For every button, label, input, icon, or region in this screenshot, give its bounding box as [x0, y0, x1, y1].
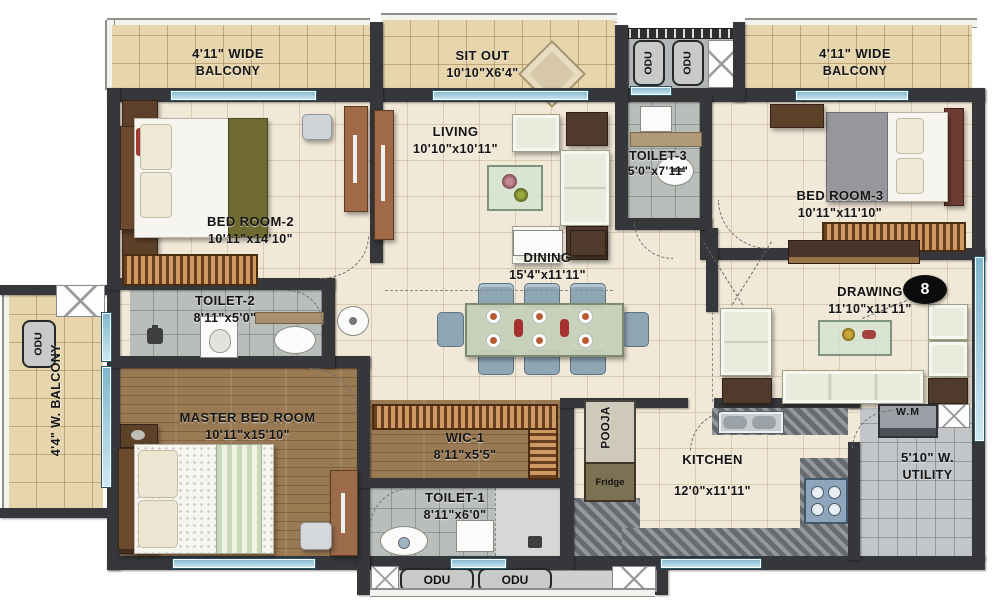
room-dims: BALCONY: [128, 63, 328, 79]
plant-decor-icon: [514, 188, 528, 202]
wc-icon: [456, 520, 494, 552]
washing-machine-label: W.M: [896, 406, 920, 418]
room-name: SIT OUT: [400, 48, 565, 65]
wall: [706, 228, 718, 312]
dining-chair-icon: [622, 312, 649, 347]
room-name: POOJA: [600, 398, 615, 456]
wall: [357, 356, 370, 570]
vent-grill-icon: [628, 28, 735, 39]
stove-icon: [804, 478, 848, 524]
room-name: TOILET-3: [608, 148, 708, 164]
odu-label: ODU: [643, 51, 655, 74]
kitchen-label: KITCHEN12'0"x11'11": [630, 452, 795, 499]
dresser-icon: [330, 470, 358, 556]
floor-plan: ODU ODU ODU ODU ODU: [0, 0, 1000, 600]
flower-decor-icon: [502, 174, 517, 189]
room-dims: 10'10"X6'4": [400, 65, 565, 81]
blanket-icon: [216, 444, 262, 554]
pillow-icon: [140, 172, 172, 218]
bedroom3-label: BED ROOM-310'11"x11'10": [745, 188, 935, 221]
wall: [560, 400, 574, 570]
balcony-top-right-label: 4'11" WIDEBALCONY: [755, 46, 955, 79]
cistern-icon: [640, 106, 672, 132]
table-runner-icon: [560, 319, 569, 337]
nightstand-icon: [770, 104, 824, 128]
armchair-icon: [928, 341, 968, 377]
table-runner-icon: [514, 319, 523, 337]
window: [660, 558, 762, 569]
sofa-icon: [560, 150, 610, 226]
vanity-counter-icon: [630, 132, 702, 147]
side-table-icon: [722, 378, 772, 404]
odu-label: ODU: [502, 573, 529, 587]
room-dims: 5'0"x7'11": [608, 164, 708, 180]
room-dims: BALCONY: [755, 63, 955, 79]
room-name: WIC-1: [390, 430, 540, 447]
room-name: LIVING: [388, 124, 523, 141]
room-name: 5'10" W.: [870, 450, 985, 467]
tv-unit-handle: [381, 145, 385, 201]
wardrobe-icon: [122, 254, 258, 286]
room-name: TOILET-2: [150, 293, 300, 310]
window: [795, 90, 909, 101]
room-name: 4'11" WIDE: [755, 46, 955, 63]
odu-unit: ODU: [672, 40, 704, 86]
chair-icon: [302, 114, 332, 140]
room-name: BED ROOM-3: [745, 188, 935, 205]
room-name: DRAWING: [780, 284, 960, 301]
dining-label: DINING15'4"x11'11": [470, 250, 625, 283]
odu-unit: ODU: [633, 40, 665, 86]
room-name: TOILET-1: [380, 490, 530, 507]
wc-seat: [209, 329, 231, 353]
balcony-top-left-label: 4'11" WIDEBALCONY: [128, 46, 328, 79]
room-name: 4'11" WIDE: [128, 46, 328, 63]
pillow-icon: [140, 124, 172, 170]
room-name: DINING: [470, 250, 625, 267]
dresser-icon: [344, 106, 368, 212]
room-dims: 8'11"x5'5": [390, 447, 540, 463]
toilet1-label: TOILET-18'11"x6'0": [380, 490, 530, 523]
plate-icon: [486, 309, 501, 324]
bedroom2-label: BED ROOM-210'11"x14'10": [148, 214, 353, 247]
side-table-icon: [566, 112, 608, 146]
tv-unit-icon: [788, 240, 920, 264]
plate-icon: [486, 333, 501, 348]
window: [101, 366, 112, 488]
fridge: Fridge: [584, 462, 636, 502]
pooja-label: POOJA: [600, 398, 615, 456]
sofa-icon: [782, 370, 924, 404]
room-dims: 8'11"x6'0": [380, 507, 530, 523]
washbasin-icon: [380, 526, 428, 556]
plate-icon: [578, 333, 593, 348]
wall: [848, 442, 860, 560]
room-name: KITCHEN: [630, 452, 795, 469]
toilet2-label: TOILET-28'11"x5'0": [150, 293, 300, 326]
decor-icon: [862, 330, 876, 339]
wall: [370, 22, 383, 90]
room-name: MASTER BED ROOM: [135, 410, 360, 427]
burner-icon: [811, 503, 824, 516]
dining-chair-icon: [437, 312, 464, 347]
odu-label: ODU: [33, 332, 45, 355]
room-dims: UTILITY: [870, 467, 985, 483]
dresser-handle: [353, 135, 357, 183]
drain-icon: [398, 537, 410, 549]
utility-label: 5'10" W.UTILITY: [870, 450, 985, 483]
tap-icon: [528, 536, 542, 548]
burner-icon: [811, 486, 824, 499]
window: [450, 558, 507, 569]
window: [101, 312, 112, 362]
toilet3-label: TOILET-35'0"x7'11": [608, 148, 708, 180]
room-dims: 15'4"x11'11": [470, 267, 625, 283]
room-dims: 10'11"x14'10": [148, 231, 353, 247]
master-bedroom-label: MASTER BED ROOM10'11"x15'10": [135, 410, 360, 443]
window: [170, 90, 317, 101]
washbasin-icon: [337, 306, 369, 336]
balcony-left-label: 4'4" W. BALCONY: [48, 300, 64, 500]
shower-icon: [147, 328, 163, 344]
sofa-icon: [720, 308, 772, 376]
plate-icon: [532, 309, 547, 324]
kitchen-counter: [622, 528, 802, 556]
sitout-label: SIT OUT10'10"X6'4": [400, 48, 565, 81]
room-dims: 8'11"x5'0": [150, 310, 300, 326]
drawing-label: DRAWING11'10"x11'11": [780, 284, 960, 317]
drain-icon: [349, 317, 357, 325]
room-dims: 10'10"x10'11": [388, 141, 523, 157]
closet-shelf-icon: [372, 404, 558, 430]
window: [630, 86, 672, 96]
odu-label: ODU: [682, 51, 694, 74]
fridge-label: Fridge: [595, 477, 624, 488]
wall: [357, 556, 370, 595]
window: [974, 256, 985, 442]
dresser-handle: [341, 493, 345, 533]
room-dims: 10'11"x15'10": [135, 427, 360, 443]
wic-label: WIC-18'11"x5'5": [390, 430, 540, 463]
plate-icon: [578, 309, 593, 324]
window: [432, 90, 589, 101]
chair-icon: [300, 522, 332, 550]
sink-basin: [752, 416, 776, 429]
room-dims: 10'11"x11'10": [745, 205, 935, 221]
open-transition-line: [385, 290, 613, 291]
burner-icon: [828, 486, 841, 499]
decor-icon: [842, 328, 855, 341]
duct-shaft-icon: [708, 40, 735, 88]
room-name: BED ROOM-2: [148, 214, 353, 231]
room-dims: 11'10"x11'11": [780, 301, 960, 317]
window: [172, 558, 316, 569]
coffee-table-icon: [487, 165, 543, 211]
washbasin-icon: [274, 326, 316, 354]
side-table-icon: [928, 378, 968, 404]
balcony-rail: [370, 588, 655, 597]
pillow-icon: [896, 118, 924, 154]
room-dims: 12'0"x11'11": [630, 483, 795, 499]
living-label: LIVING10'10"x10'11": [388, 124, 523, 157]
plate-icon: [532, 333, 547, 348]
open-transition-line: [712, 312, 713, 402]
wall: [0, 508, 107, 518]
pillow-icon: [138, 500, 178, 548]
room-name: 4'4" W. BALCONY: [48, 300, 64, 500]
odu-label: ODU: [424, 573, 451, 587]
wall: [733, 22, 745, 102]
wall: [615, 25, 628, 230]
utility-vent-icon: [938, 404, 970, 428]
coffee-table-icon: [818, 320, 892, 356]
pillow-icon: [138, 450, 178, 498]
burner-icon: [828, 503, 841, 516]
